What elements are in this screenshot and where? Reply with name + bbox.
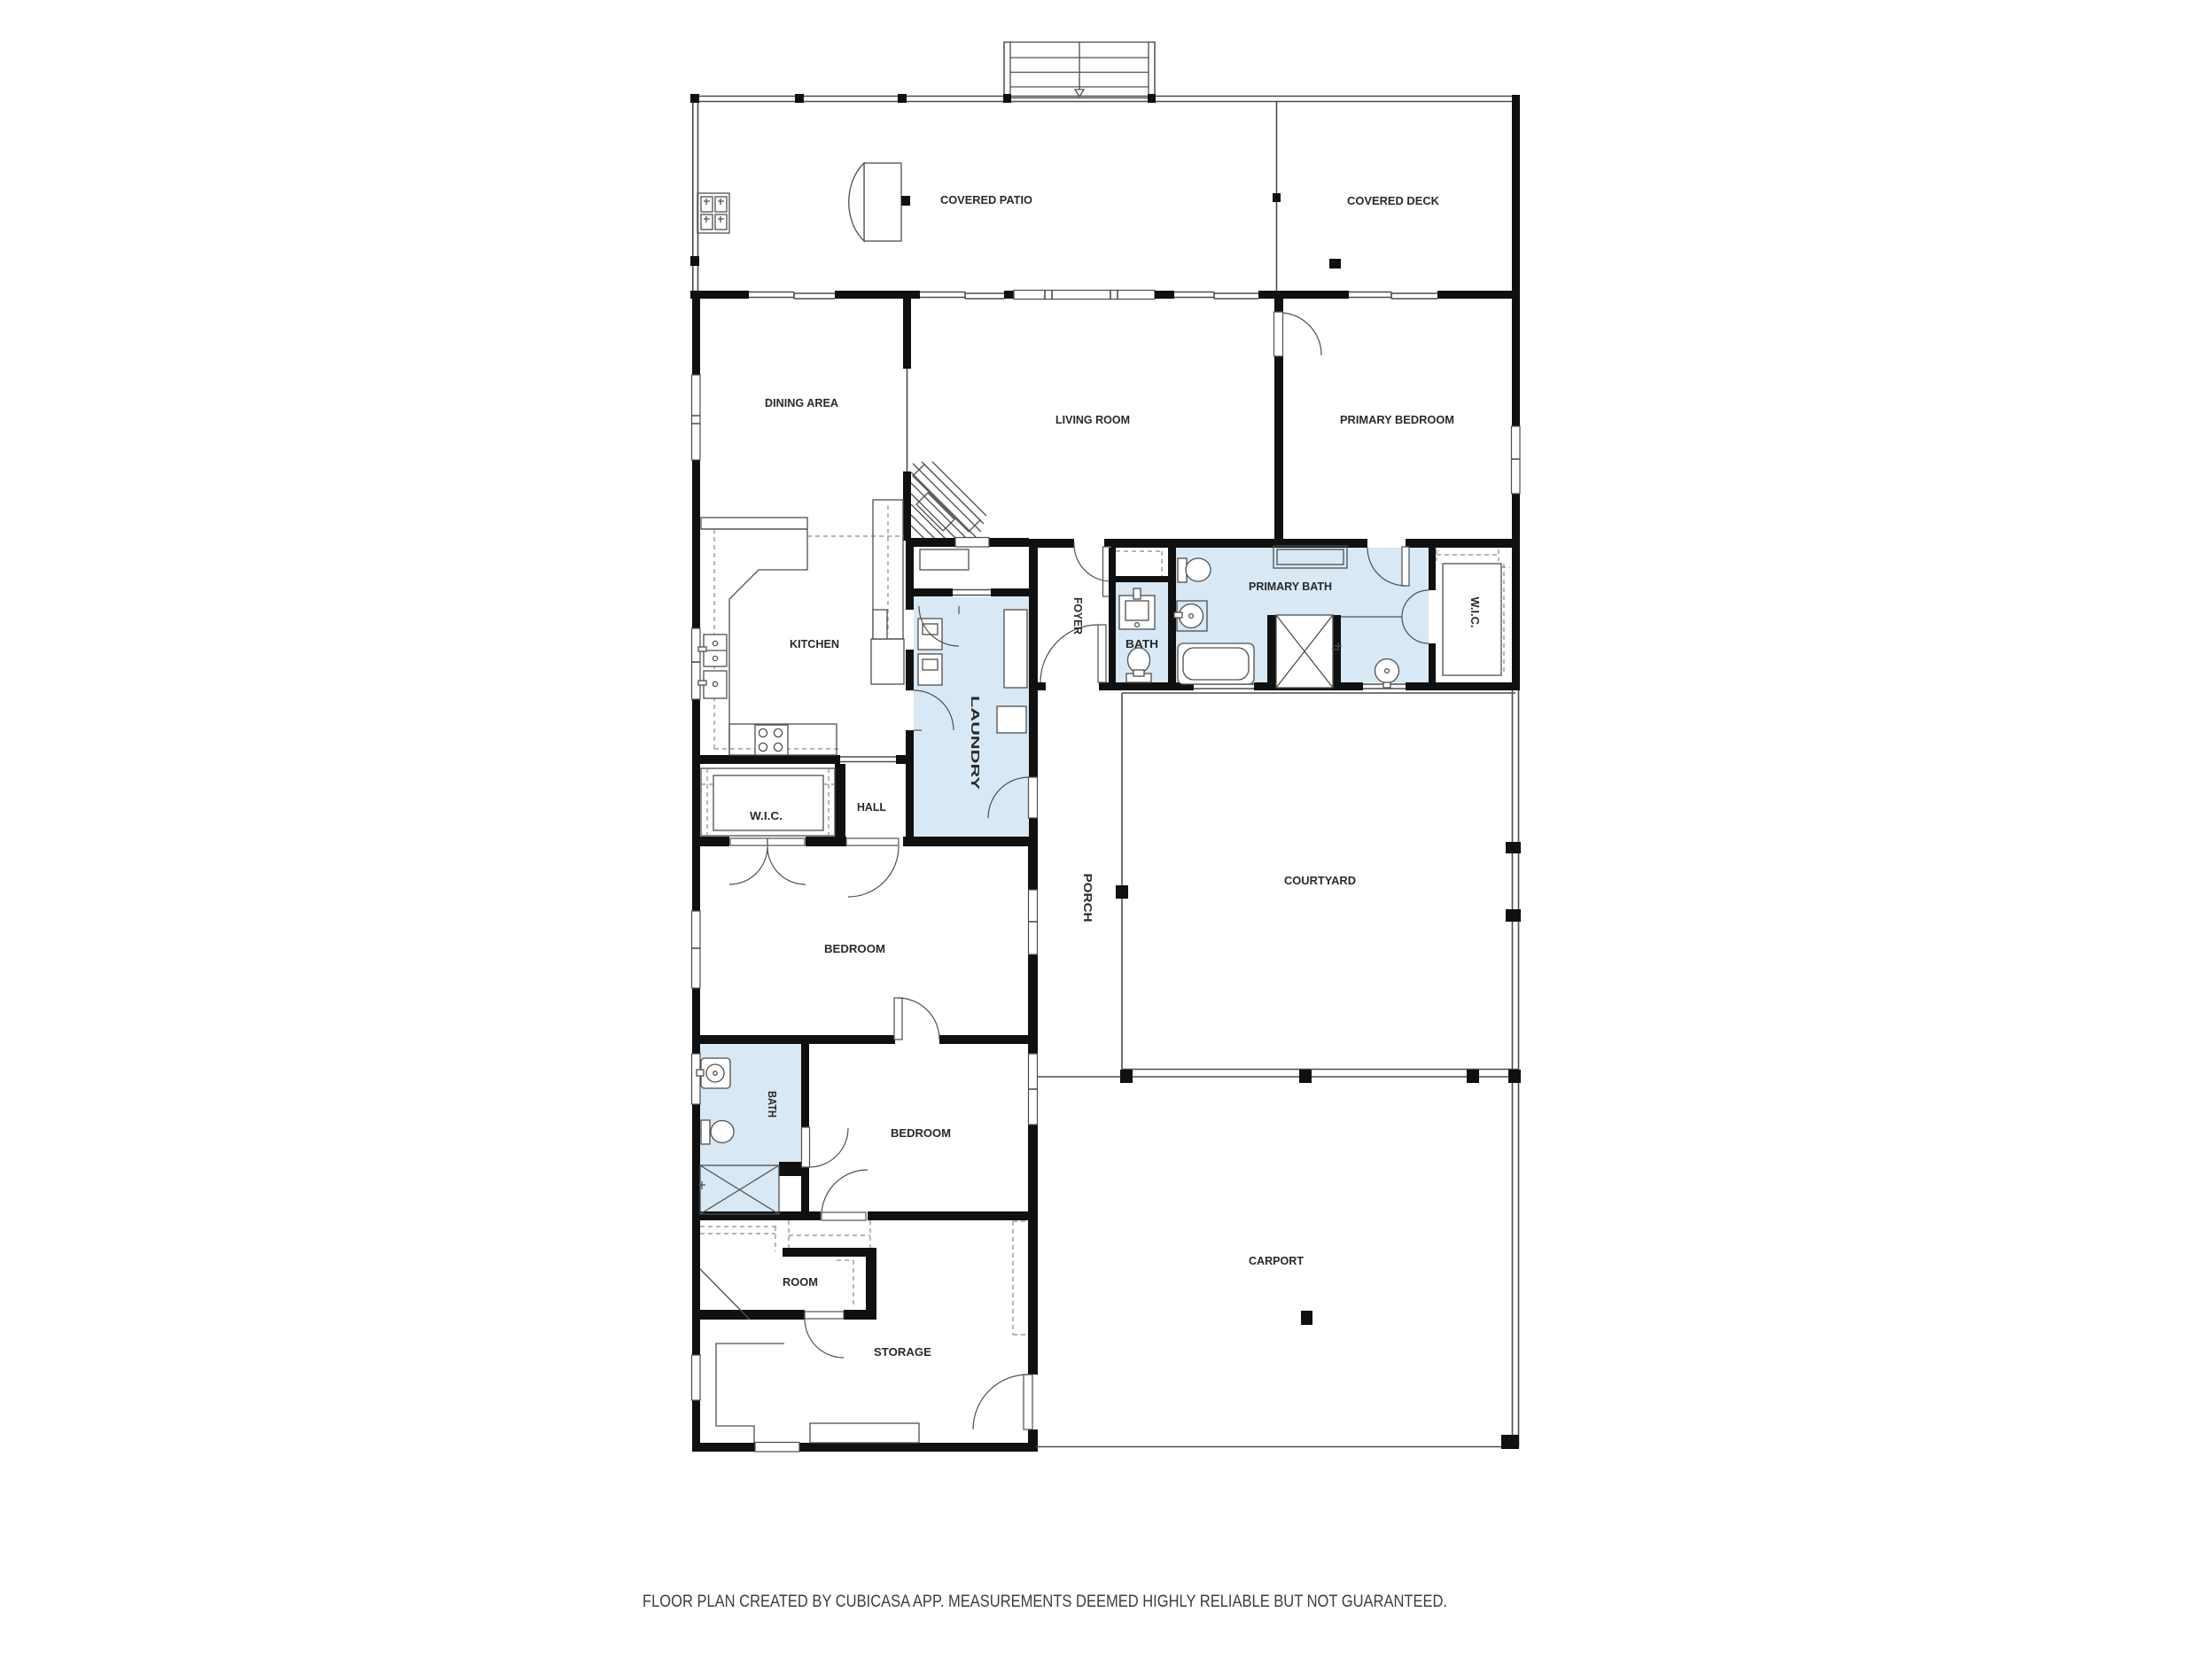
svg-text:W.I.C.: W.I.C. [750, 809, 783, 822]
svg-text:COURTYARD: COURTYARD [1284, 874, 1356, 887]
svg-text:FLOOR PLAN CREATED BY CUBICASA: FLOOR PLAN CREATED BY CUBICASA APP. MEAS… [643, 1592, 1447, 1611]
svg-text:BATH: BATH [766, 1091, 779, 1118]
svg-text:LAUNDRY: LAUNDRY [969, 696, 982, 791]
svg-text:HALL: HALL [857, 800, 886, 814]
svg-text:COVERED PATIO: COVERED PATIO [940, 193, 1032, 206]
svg-text:BEDROOM: BEDROOM [891, 1126, 951, 1140]
svg-text:W.I.C.: W.I.C. [1468, 597, 1482, 628]
svg-text:CARPORT: CARPORT [1249, 1254, 1304, 1267]
svg-text:DINING AREA: DINING AREA [765, 396, 839, 409]
svg-text:PRIMARY BATH: PRIMARY BATH [1249, 580, 1332, 593]
svg-text:KITCHEN: KITCHEN [790, 637, 839, 650]
svg-text:STORAGE: STORAGE [874, 1345, 931, 1359]
svg-text:COVERED DECK: COVERED DECK [1347, 194, 1440, 207]
svg-text:FOYER: FOYER [1071, 597, 1085, 635]
svg-text:BEDROOM: BEDROOM [824, 942, 885, 955]
svg-text:PRIMARY BEDROOM: PRIMARY BEDROOM [1340, 413, 1454, 426]
svg-text:PORCH: PORCH [1081, 874, 1094, 923]
svg-text:BATH: BATH [1125, 637, 1158, 650]
svg-text:ROOM: ROOM [783, 1275, 818, 1289]
svg-text:LIVING ROOM: LIVING ROOM [1055, 413, 1130, 426]
